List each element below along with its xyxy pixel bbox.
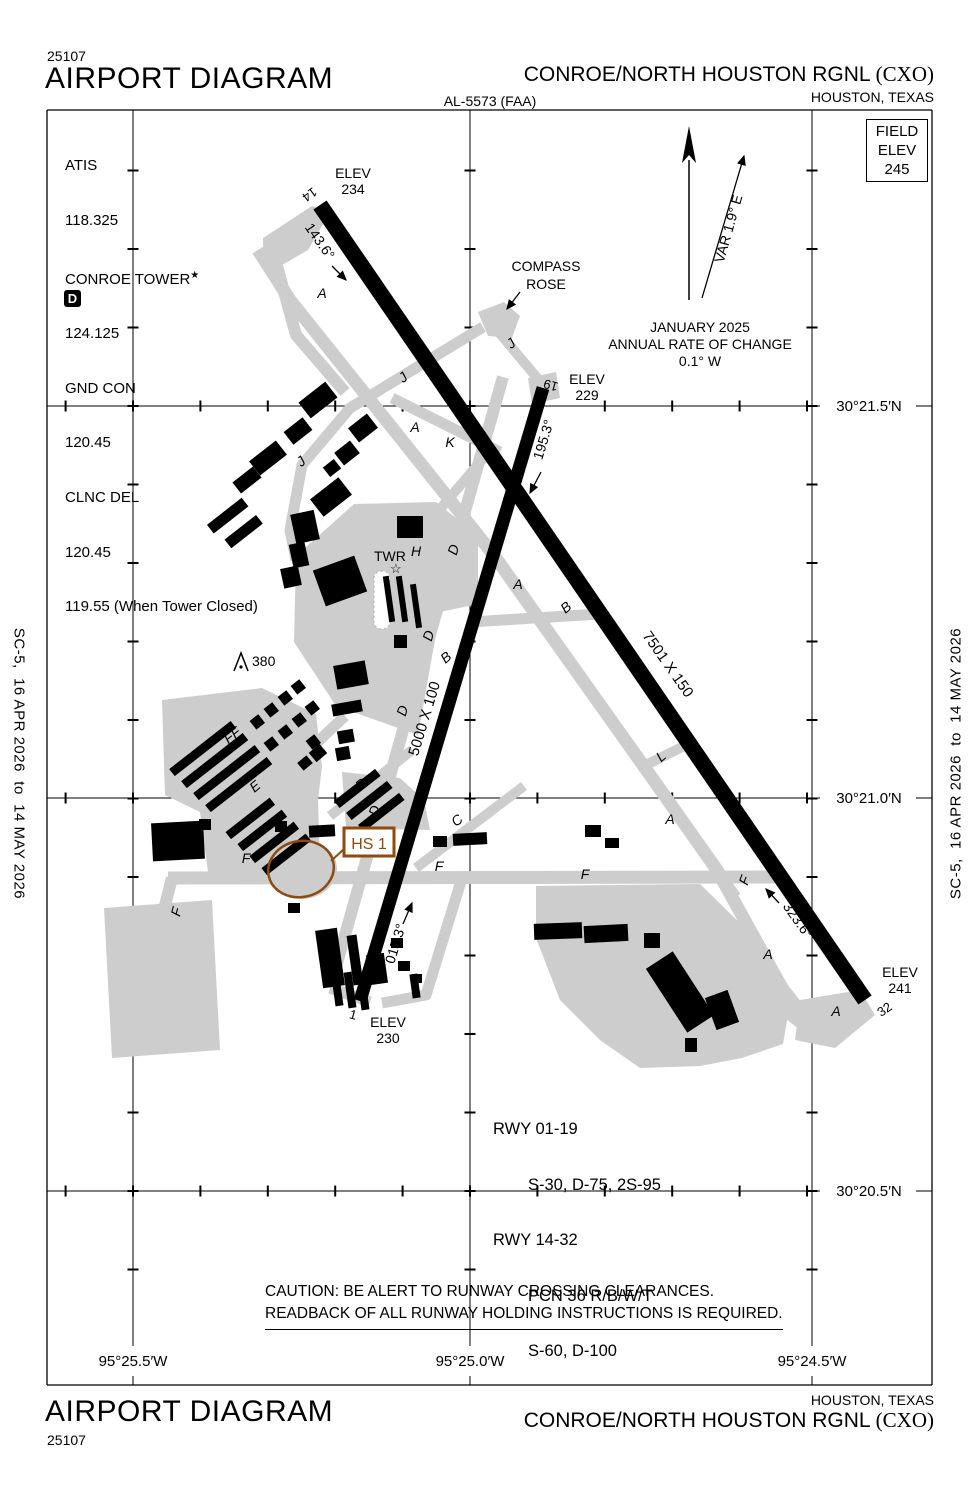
building	[323, 459, 341, 477]
heading-arrow	[766, 889, 779, 903]
variation-label: VAR 1.9° E	[711, 193, 746, 265]
building	[289, 542, 310, 569]
building	[284, 417, 313, 444]
building	[397, 516, 423, 538]
obstruction-value: 380	[252, 653, 276, 669]
compass-rose-label: ROSE	[526, 276, 566, 292]
taxiway-label: A	[512, 576, 522, 592]
elev-label-14: ELEV	[335, 165, 371, 181]
building	[151, 821, 205, 862]
mag-info-line: ANNUAL RATE OF CHANGE	[608, 336, 792, 352]
elev-label-19: ELEV	[569, 371, 605, 387]
heading-arrow	[332, 266, 346, 280]
building	[644, 933, 660, 948]
compass-rose-callout: COMPASS ROSE	[507, 258, 580, 309]
building	[398, 961, 410, 971]
latitude-label: 30°20.5′N	[836, 1183, 902, 1200]
building	[585, 825, 601, 837]
elev-value-14: 234	[341, 181, 365, 197]
elev-value-19: 229	[575, 387, 599, 403]
taxiway-label: A	[409, 419, 419, 435]
latitude-label: 30°21.5′N	[836, 398, 902, 415]
north-arrow-head-icon	[682, 126, 696, 163]
building	[584, 924, 629, 943]
building	[310, 477, 352, 517]
elev-label-32: ELEV	[882, 964, 918, 980]
taxiway-label: A	[830, 1003, 840, 1019]
latitude-label: 30°21.0′N	[836, 790, 902, 807]
taxiway-b	[470, 614, 600, 622]
heading-arrow	[403, 903, 412, 924]
airport-diagram-page: 25107 AIRPORT DIAGRAM AL-5573 (FAA) CONR…	[0, 0, 978, 1500]
hot-spot-label: HS 1	[351, 836, 387, 853]
building	[433, 836, 447, 847]
building	[335, 746, 351, 761]
building	[534, 922, 583, 940]
runway-number-32: 32	[874, 999, 894, 1020]
airport-diagram-map: HS 1 VAR 1.9° E JANUARY 2025 ANNUAL RATE…	[0, 0, 978, 1500]
building	[288, 903, 300, 913]
longitude-label: 95°25.0′W	[436, 1353, 506, 1370]
building	[685, 1038, 697, 1052]
building	[275, 821, 287, 832]
building	[199, 819, 211, 830]
building	[394, 635, 407, 648]
tower-star-icon: ☆	[390, 561, 402, 576]
building	[298, 382, 337, 419]
longitude-label: 95°24.5′W	[778, 1353, 848, 1370]
runway-number-1: 1	[348, 1006, 359, 1022]
elev-label-1: ELEV	[370, 1014, 406, 1030]
building	[337, 729, 355, 745]
runway-number-14: 14	[299, 184, 320, 205]
longitude-label: 95°25.5′W	[99, 1353, 169, 1370]
north-indicator: VAR 1.9° E JANUARY 2025 ANNUAL RATE OF C…	[608, 126, 792, 369]
building	[605, 838, 619, 848]
taxiway-label: F	[581, 866, 591, 882]
heading-arrow	[530, 472, 541, 493]
taxiway-f	[168, 877, 783, 878]
hot-spot-leader	[331, 849, 344, 861]
taxiway-label: F	[435, 858, 445, 874]
mag-info-line: 0.1° W	[679, 353, 722, 369]
building	[334, 441, 360, 466]
elev-value-1: 230	[376, 1030, 400, 1046]
building	[348, 414, 378, 443]
elev-value-32: 241	[888, 980, 912, 996]
taxiway-label: A	[664, 811, 674, 827]
taxiway-label: F	[242, 850, 252, 866]
taxiway-label: K	[445, 434, 455, 450]
building	[309, 824, 336, 837]
obstruction-icon	[239, 665, 242, 668]
taxiway-label: A	[316, 285, 326, 301]
compass-rose-leader	[507, 292, 520, 309]
mag-info-line: JANUARY 2025	[650, 319, 750, 335]
building	[453, 832, 488, 846]
taxiways	[160, 248, 852, 1038]
compass-rose-label: COMPASS	[512, 258, 581, 274]
taxiway-label: A	[762, 946, 772, 962]
taxiway-label: B	[437, 648, 454, 666]
taxiway-label: H	[411, 543, 422, 559]
building	[291, 679, 306, 694]
